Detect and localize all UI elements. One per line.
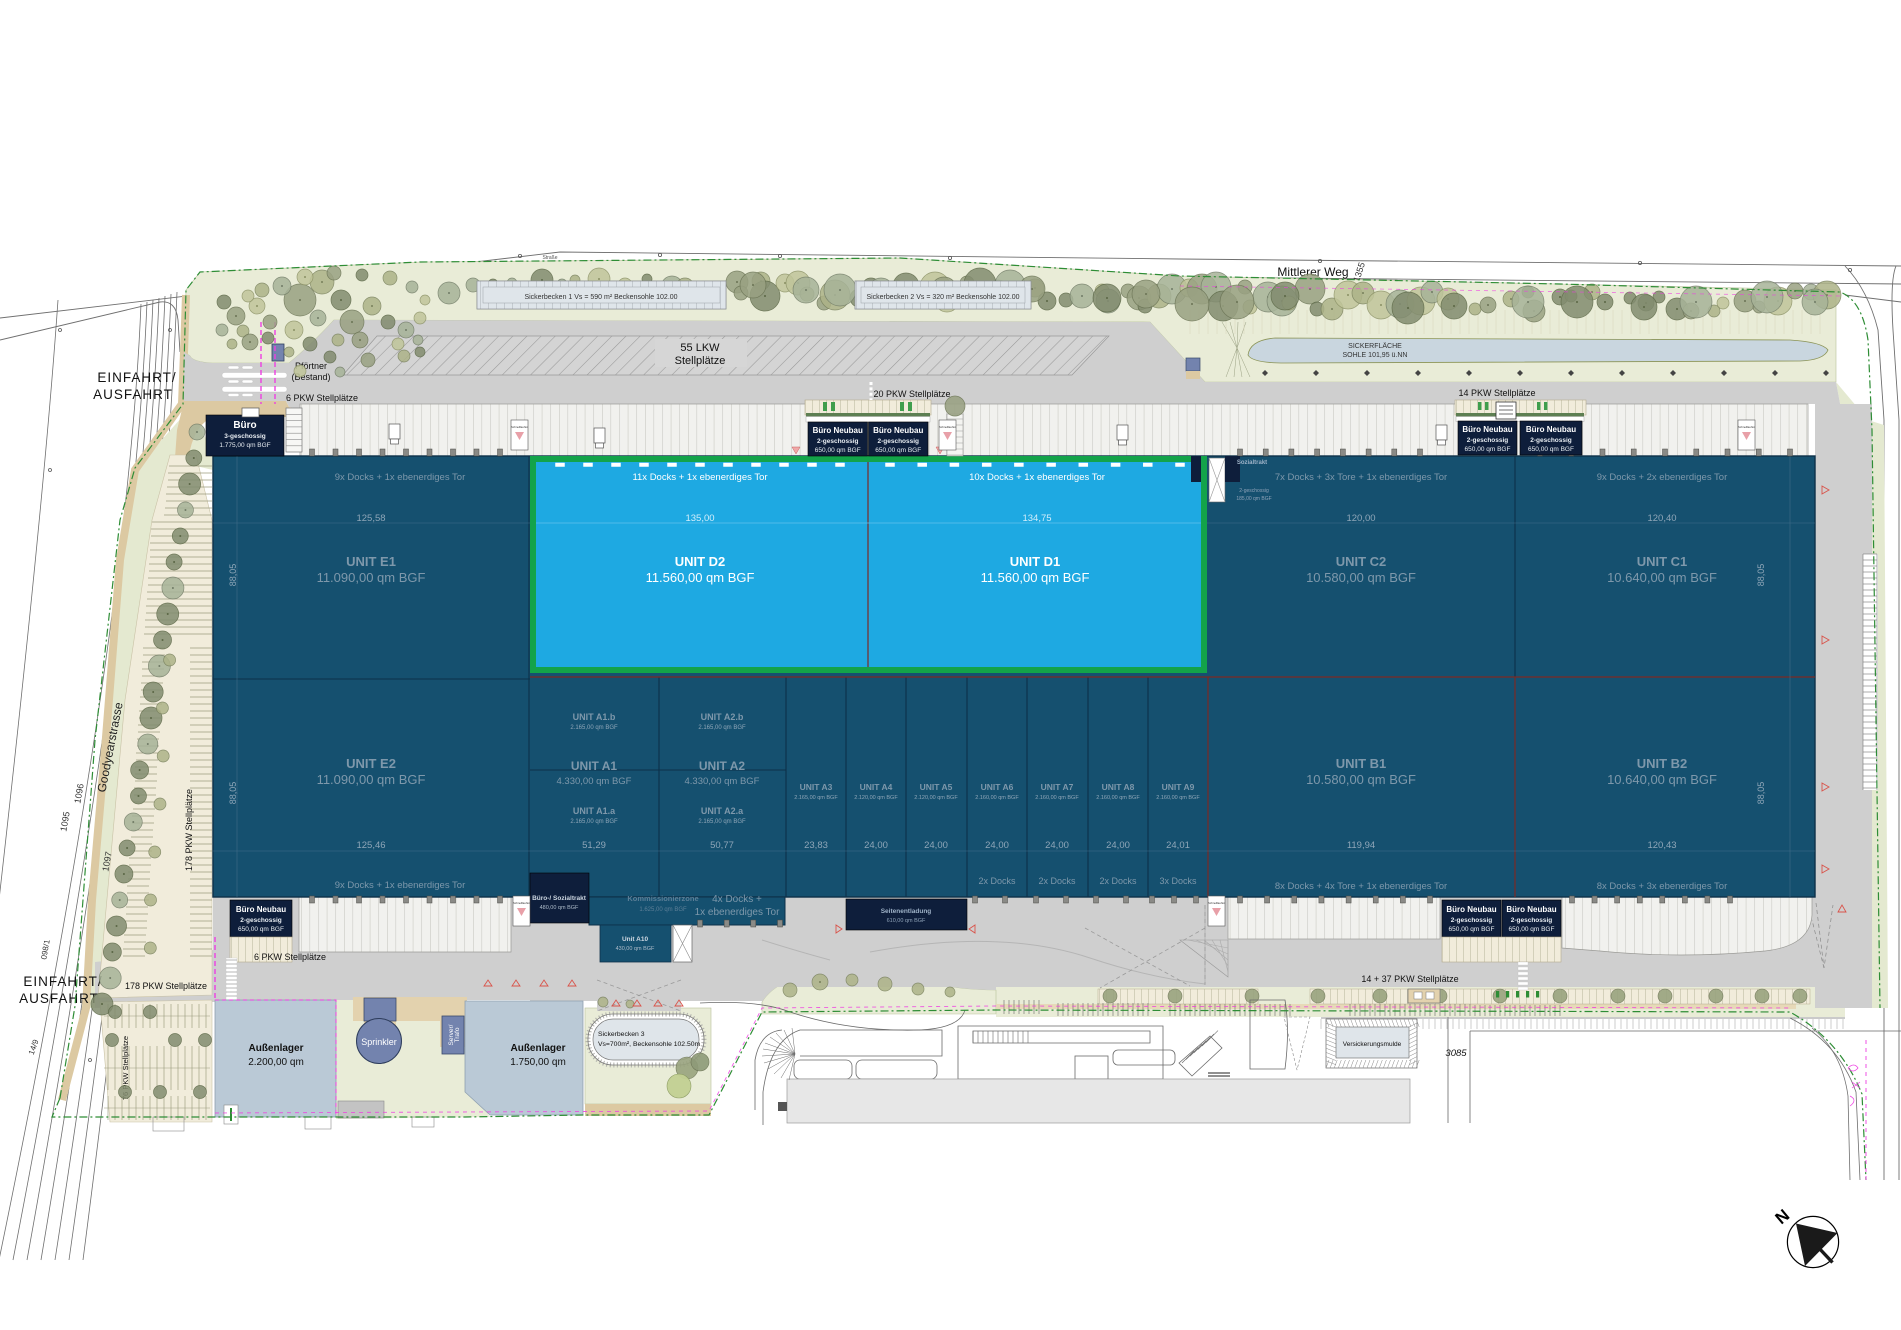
svg-text:UNIT E1: UNIT E1 <box>346 554 396 569</box>
svg-text:55 LKW: 55 LKW <box>680 342 720 354</box>
svg-text:2x Docks: 2x Docks <box>1099 876 1137 886</box>
svg-text:11.090,00 qm BGF: 11.090,00 qm BGF <box>317 570 426 585</box>
svg-text:11.560,00 qm BGF: 11.560,00 qm BGF <box>646 570 755 585</box>
svg-text:UNIT A1.b: UNIT A1.b <box>573 712 616 722</box>
svg-text:650,00 qm BGF: 650,00 qm BGF <box>1528 446 1574 453</box>
svg-text:Seitenentladung: Seitenentladung <box>881 908 932 915</box>
svg-text:51,29: 51,29 <box>582 840 606 851</box>
svg-text:Unit A10: Unit A10 <box>622 936 649 943</box>
svg-text:2x Docks: 2x Docks <box>1038 876 1076 886</box>
svg-text:2.165,00 qm BGF: 2.165,00 qm BGF <box>698 819 746 825</box>
svg-text:UNIT A4: UNIT A4 <box>860 782 893 792</box>
svg-text:4.330,00 qm BGF: 4.330,00 qm BGF <box>685 776 760 787</box>
svg-text:11.090,00 qm BGF: 11.090,00 qm BGF <box>317 772 426 787</box>
svg-text:Kommissionierzone: Kommissionierzone <box>627 894 698 903</box>
svg-text:SICKERFLÄCHE: SICKERFLÄCHE <box>1348 342 1402 350</box>
svg-text:650,00 qm BGF: 650,00 qm BGF <box>815 447 861 454</box>
svg-text:UNIT D2: UNIT D2 <box>675 554 726 569</box>
svg-text:88,05: 88,05 <box>1756 782 1766 805</box>
svg-text:3x Docks: 3x Docks <box>1159 876 1197 886</box>
svg-text:2.160,00 qm BGF: 2.160,00 qm BGF <box>1096 795 1140 801</box>
svg-text:Trafo: Trafo <box>454 1027 461 1042</box>
svg-text:88,05: 88,05 <box>228 782 238 805</box>
svg-text:10x Docks + 1x ebenerdiges Tor: 10x Docks + 1x ebenerdiges Tor <box>969 472 1105 483</box>
svg-text:6 PKW Stellplätze: 6 PKW Stellplätze <box>286 393 358 403</box>
svg-text:2.165,00 qm BGF: 2.165,00 qm BGF <box>570 819 618 825</box>
svg-text:EINFAHRT/: EINFAHRT/ <box>23 974 102 989</box>
svg-text:650,00 qm BGF: 650,00 qm BGF <box>1465 446 1511 453</box>
svg-text:650,00 qm BGF: 650,00 qm BGF <box>1509 926 1555 933</box>
svg-text:EINFAHRT/: EINFAHRT/ <box>97 370 176 385</box>
svg-text:2-geschossig: 2-geschossig <box>1530 437 1572 444</box>
svg-text:23,83: 23,83 <box>804 840 828 851</box>
svg-text:Schnelllauftor: Schnelllauftor <box>1738 425 1755 429</box>
svg-text:20 PKW Stellplätze: 20 PKW Stellplätze <box>873 389 950 399</box>
svg-text:UNIT A5: UNIT A5 <box>920 782 953 792</box>
svg-text:3-geschossig: 3-geschossig <box>224 433 266 440</box>
svg-text:Sprinkler: Sprinkler <box>361 1037 397 1047</box>
svg-text:Vs=700m², Beckensohle 102.50m: Vs=700m², Beckensohle 102.50m <box>598 1041 701 1048</box>
svg-text:14 PKW Stellplätze: 14 PKW Stellplätze <box>1458 388 1535 398</box>
svg-text:125,58: 125,58 <box>356 513 385 524</box>
svg-text:9x Docks + 1x ebenerdiges Tor: 9x Docks + 1x ebenerdiges Tor <box>335 880 466 891</box>
svg-text:135,00: 135,00 <box>685 513 714 524</box>
svg-text:14 + 37 PKW Stellplätze: 14 + 37 PKW Stellplätze <box>1361 974 1458 984</box>
svg-text:UNIT A2.b: UNIT A2.b <box>701 712 744 722</box>
svg-text:185,00 qm BGF: 185,00 qm BGF <box>1236 496 1271 502</box>
svg-text:8x Docks + 3x ebenerdiges Tor: 8x Docks + 3x ebenerdiges Tor <box>1597 881 1728 892</box>
svg-text:1x ebenerdiges Tor: 1x ebenerdiges Tor <box>695 907 781 918</box>
svg-text:Büro Neubau: Büro Neubau <box>1446 905 1496 914</box>
svg-text:UNIT B2: UNIT B2 <box>1637 756 1688 771</box>
svg-text:7x Docks + 3x Tore + 1x ebener: 7x Docks + 3x Tore + 1x ebenerdiges Tor <box>1275 472 1447 483</box>
svg-text:UNIT E2: UNIT E2 <box>346 756 396 771</box>
svg-text:430,00 qm BGF: 430,00 qm BGF <box>616 946 655 952</box>
svg-text:Büro: Büro <box>233 420 256 431</box>
svg-text:120,43: 120,43 <box>1647 840 1676 851</box>
svg-text:610,00 qm BGF: 610,00 qm BGF <box>887 918 926 924</box>
svg-text:2-geschossig: 2-geschossig <box>1451 917 1493 924</box>
svg-text:2-geschossig: 2-geschossig <box>1467 437 1509 444</box>
svg-text:UNIT A8: UNIT A8 <box>1102 782 1135 792</box>
svg-text:2.160,00 qm BGF: 2.160,00 qm BGF <box>1156 795 1200 801</box>
svg-text:Büro Neubau: Büro Neubau <box>236 905 286 914</box>
svg-text:88,05: 88,05 <box>1756 564 1766 587</box>
svg-text:2-geschossig: 2-geschossig <box>240 917 282 924</box>
svg-text:24,00: 24,00 <box>864 840 888 851</box>
svg-text:UNIT A3: UNIT A3 <box>800 782 833 792</box>
svg-text:UNIT A7: UNIT A7 <box>1041 782 1074 792</box>
svg-text:11.560,00 qm BGF: 11.560,00 qm BGF <box>981 570 1090 585</box>
svg-text:8x Docks + 4x Tore + 1x ebener: 8x Docks + 4x Tore + 1x ebenerdiges Tor <box>1275 881 1447 892</box>
svg-text:Schnelllauftor: Schnelllauftor <box>511 425 528 429</box>
svg-text:10.640,00 qm BGF: 10.640,00 qm BGF <box>1607 772 1717 787</box>
svg-text:178 PKW Stellplätze: 178 PKW Stellplätze <box>125 981 207 991</box>
svg-text:Büro Neubau: Büro Neubau <box>813 426 863 435</box>
svg-text:2.165,00 qm BGF: 2.165,00 qm BGF <box>794 795 838 801</box>
svg-text:120,40: 120,40 <box>1647 513 1676 524</box>
svg-text:AUSFAHRT: AUSFAHRT <box>93 387 173 402</box>
svg-text:9x Docks + 2x ebenerdiges Tor: 9x Docks + 2x ebenerdiges Tor <box>1597 472 1728 483</box>
svg-text:10.640,00 qm BGF: 10.640,00 qm BGF <box>1607 570 1717 585</box>
svg-text:UNIT A2.a: UNIT A2.a <box>701 806 744 816</box>
svg-text:88,05: 88,05 <box>228 564 238 587</box>
svg-text:2.120,00 qm BGF: 2.120,00 qm BGF <box>914 795 958 801</box>
svg-text:2-geschossig: 2-geschossig <box>817 438 859 445</box>
svg-text:2-geschossig: 2-geschossig <box>1239 488 1269 494</box>
svg-text:125,46: 125,46 <box>356 840 385 851</box>
svg-text:650,00 qm BGF: 650,00 qm BGF <box>238 926 284 933</box>
svg-text:1.775,00 qm BGF: 1.775,00 qm BGF <box>219 442 270 449</box>
svg-text:UNIT A6: UNIT A6 <box>981 782 1014 792</box>
svg-text:2.160,00 qm BGF: 2.160,00 qm BGF <box>1035 795 1079 801</box>
svg-text:24,00: 24,00 <box>1106 840 1130 851</box>
svg-text:Straße: Straße <box>542 255 557 261</box>
svg-text:Schnelllauftor: Schnelllauftor <box>939 425 956 429</box>
svg-text:4x Docks +: 4x Docks + <box>712 894 762 905</box>
svg-text:24,01: 24,01 <box>1166 840 1190 851</box>
svg-text:Stellplätze: Stellplätze <box>675 355 726 367</box>
svg-text:1.625,00 qm BGF: 1.625,00 qm BGF <box>639 907 687 913</box>
svg-text:24,00: 24,00 <box>1045 840 1069 851</box>
svg-text:UNIT A1: UNIT A1 <box>571 759 618 773</box>
svg-text:2.165,00 qm BGF: 2.165,00 qm BGF <box>570 725 618 731</box>
svg-text:10.580,00 qm BGF: 10.580,00 qm BGF <box>1306 772 1416 787</box>
svg-text:Büro Neubau: Büro Neubau <box>873 426 923 435</box>
svg-text:UNIT C1: UNIT C1 <box>1637 554 1688 569</box>
svg-text:Sickerbecken 2 Vs = 320 m²: Sickerbecken 2 Vs = 320 m² Beckensohle 1… <box>866 294 1019 301</box>
svg-text:178 PKW Stellplätze: 178 PKW Stellplätze <box>184 789 194 871</box>
svg-text:Schnelllauftor: Schnelllauftor <box>1208 901 1225 905</box>
svg-text:6 PKW Stellplätze: 6 PKW Stellplätze <box>254 952 326 962</box>
svg-text:3085: 3085 <box>1445 1048 1467 1059</box>
svg-text:2.160,00 qm BGF: 2.160,00 qm BGF <box>975 795 1019 801</box>
svg-text:4.330,00 qm BGF: 4.330,00 qm BGF <box>557 776 632 787</box>
svg-text:Sickerbecken 3: Sickerbecken 3 <box>598 1031 645 1038</box>
svg-text:2-geschossig: 2-geschossig <box>877 438 919 445</box>
svg-text:AUSFAHRT: AUSFAHRT <box>19 991 99 1006</box>
svg-text:Büro Neubau: Büro Neubau <box>1506 905 1556 914</box>
svg-text:650,00 qm BGF: 650,00 qm BGF <box>875 447 921 454</box>
svg-text:Versickerungsmulde: Versickerungsmulde <box>1343 1041 1402 1048</box>
svg-text:UNIT A2: UNIT A2 <box>699 759 746 773</box>
svg-text:UNIT B1: UNIT B1 <box>1336 756 1387 771</box>
svg-text:Außenlager: Außenlager <box>510 1043 565 1054</box>
svg-text:50,77: 50,77 <box>710 840 734 851</box>
svg-text:1.750,00 qm: 1.750,00 qm <box>510 1057 566 1068</box>
svg-text:UNIT A9: UNIT A9 <box>1162 782 1195 792</box>
svg-text:UNIT D1: UNIT D1 <box>1010 554 1061 569</box>
svg-text:650,00 qm BGF: 650,00 qm BGF <box>1449 926 1495 933</box>
svg-text:10.580,00 qm BGF: 10.580,00 qm BGF <box>1306 570 1416 585</box>
svg-text:2.120,00 qm BGF: 2.120,00 qm BGF <box>854 795 898 801</box>
svg-text:Sickerbecken 1 Vs = 590 m²: Sickerbecken 1 Vs = 590 m² Beckensohle 1… <box>524 294 677 301</box>
svg-text:120,00: 120,00 <box>1346 513 1375 524</box>
svg-text:UNIT C2: UNIT C2 <box>1336 554 1387 569</box>
svg-text:Sozialtrakt: Sozialtrakt <box>1237 460 1267 466</box>
svg-text:Außenlager: Außenlager <box>248 1043 303 1054</box>
svg-text:UNIT A1.a: UNIT A1.a <box>573 806 616 816</box>
svg-text:Büro Neubau: Büro Neubau <box>1462 425 1512 434</box>
svg-text:2x Docks: 2x Docks <box>978 876 1016 886</box>
svg-text:2.165,00 qm BGF: 2.165,00 qm BGF <box>698 725 746 731</box>
svg-text:2.200,00 qm: 2.200,00 qm <box>248 1057 304 1068</box>
svg-text:119,94: 119,94 <box>1347 840 1375 851</box>
svg-text:24,00: 24,00 <box>924 840 948 851</box>
svg-text:11x Docks + 1x ebenerdiges Tor: 11x Docks + 1x ebenerdiges Tor <box>632 472 767 483</box>
svg-text:Schnelllauftor: Schnelllauftor <box>513 901 530 905</box>
svg-text:Büro-/ Sozialtrakt: Büro-/ Sozialtrakt <box>532 895 587 902</box>
svg-text:9x Docks + 1x ebenerdiges Tor: 9x Docks + 1x ebenerdiges Tor <box>335 472 466 483</box>
svg-text:Büro Neubau: Büro Neubau <box>1526 425 1576 434</box>
svg-text:SOHLE 101,95 ü.NN: SOHLE 101,95 ü.NN <box>1343 352 1408 359</box>
svg-text:134,75: 134,75 <box>1022 513 1051 524</box>
svg-text:24,00: 24,00 <box>985 840 1009 851</box>
svg-text:480,00 qm BGF: 480,00 qm BGF <box>540 905 579 911</box>
svg-text:2-geschossig: 2-geschossig <box>1511 917 1553 924</box>
